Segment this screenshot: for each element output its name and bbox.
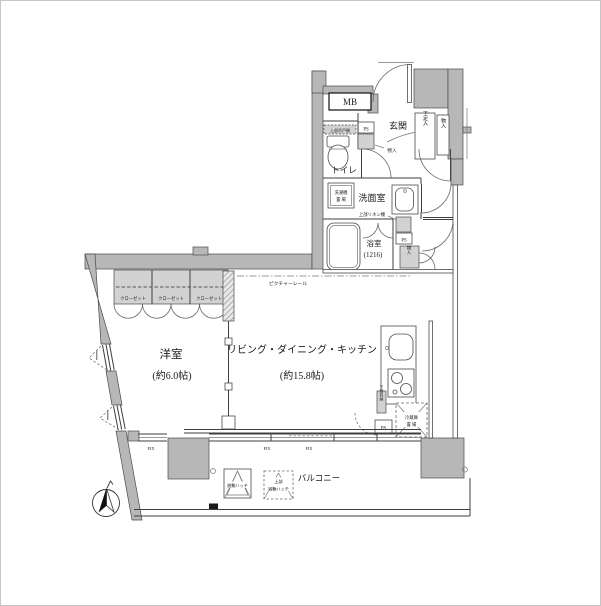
ldk-label: リビング・ダイニング・キッチン <box>227 343 377 356</box>
entrance-step-line <box>387 132 417 142</box>
fix-label: FIX <box>306 446 314 451</box>
pipe-space-label: PS <box>363 128 369 133</box>
under-counter-storage-label: 下部収納 <box>379 385 383 401</box>
bathroom-label: 浴室 <box>367 238 382 248</box>
fix-window <box>138 434 167 441</box>
floorplan-page: 下足入 物入 玄関 MB PS 上部吊戸棚 物入 トイレ <box>0 0 601 606</box>
bedroom-label: 洋室 <box>160 347 183 361</box>
washroom-door-swing <box>421 183 451 213</box>
hall-storage-label: 物入 <box>406 244 412 255</box>
casement-window-icon <box>100 405 125 430</box>
upper-cabinet-label: 上部吊戸棚 <box>330 127 350 133</box>
ldk-door-swing <box>422 220 453 251</box>
bath-door-fold <box>378 223 393 238</box>
floor-plan: 下足入 物入 玄関 MB PS 上部吊戸棚 物入 トイレ <box>1 1 600 605</box>
stove-icon <box>388 369 414 397</box>
vanity-sink-icon <box>392 185 418 214</box>
toilet-storage-label: 物入 <box>387 147 397 154</box>
entrance-door-leaf <box>408 65 412 103</box>
escape-hatch-label: 避難ハッチ <box>227 482 248 489</box>
room-labels: 洋室 (約6.0帖) リビング・ダイニング・キッチン (約15.8帖) <box>152 343 377 382</box>
diagonal-wall-middle <box>106 371 122 405</box>
drain-icon <box>211 469 216 474</box>
kitchen: 下部収納 PS 冷蔵庫 置 場 <box>355 321 433 438</box>
fix-label: FIX <box>148 446 156 451</box>
north-thin-wall <box>323 270 453 274</box>
compass-icon <box>93 481 120 517</box>
upper-escape-hatch-label1: 上部 <box>274 478 282 485</box>
diagonal-wall-lower <box>116 431 142 520</box>
fridge-space-label1: 冷蔵庫 <box>405 414 419 421</box>
escape-hatch-symbol: 避難ハッチ <box>224 469 251 498</box>
washer-space-box <box>328 183 354 208</box>
diagonal-windows <box>89 344 125 430</box>
meter-box-label: MB <box>343 97 357 107</box>
entrance-label: 玄関 <box>389 120 407 131</box>
under-counter-door-swing <box>355 413 377 435</box>
fix-label: FIX <box>264 446 272 451</box>
picture-rail: ピクチャーレール <box>237 276 411 287</box>
balcony-partition-mark <box>209 504 218 510</box>
pipe-space-label: PS <box>401 239 407 244</box>
shoe-cabinet-label: 下足入 <box>422 110 428 126</box>
bathroom: 浴室 (1216) PS 物入 <box>323 219 435 273</box>
washroom-label: 洗面室 <box>358 192 385 203</box>
linen-shelf-label: 上部リネン棚 <box>359 211 386 218</box>
entrance-door-swing <box>373 65 411 103</box>
entrance-storage-label: 物入 <box>440 116 446 128</box>
balcony-label: バルコニー <box>298 473 340 483</box>
east-wall <box>453 185 458 438</box>
toilet-storage-box <box>358 134 374 149</box>
linen-shelf-box <box>396 217 411 232</box>
bedroom-size-label: (約6.0帖) <box>152 369 191 382</box>
bathroom-size-label: (1216) <box>364 251 383 259</box>
closets: クローゼット クローゼット クローゼット <box>114 270 228 318</box>
toilet-door-swing <box>362 149 391 178</box>
fridge-space-label2: 置 場 <box>407 421 417 428</box>
upper-escape-hatch-label2: 避難ハッチ <box>268 486 289 493</box>
toilet-label: トイレ <box>331 165 357 175</box>
casement-window-icon <box>89 344 114 371</box>
kitchen-side-wall <box>429 321 433 438</box>
upper-escape-hatch-symbol: 上部 避難ハッチ <box>264 471 293 499</box>
closet-label: クローゼット <box>196 295 222 302</box>
bath-door-fold <box>363 223 378 238</box>
closet-label: クローゼット <box>120 295 146 302</box>
picture-rail-label: ピクチャーレール <box>269 281 308 287</box>
closet-label: クローゼット <box>158 295 184 302</box>
sliding-window <box>209 434 421 441</box>
bathtub-icon <box>327 223 360 270</box>
ldk-size-label: (約15.8帖) <box>280 369 324 382</box>
washer-space-label2: 置 場 <box>336 196 346 203</box>
fridge-space: 冷蔵庫 置 場 <box>396 403 427 437</box>
washer-space-label1: 洗濯機 <box>335 189 349 196</box>
